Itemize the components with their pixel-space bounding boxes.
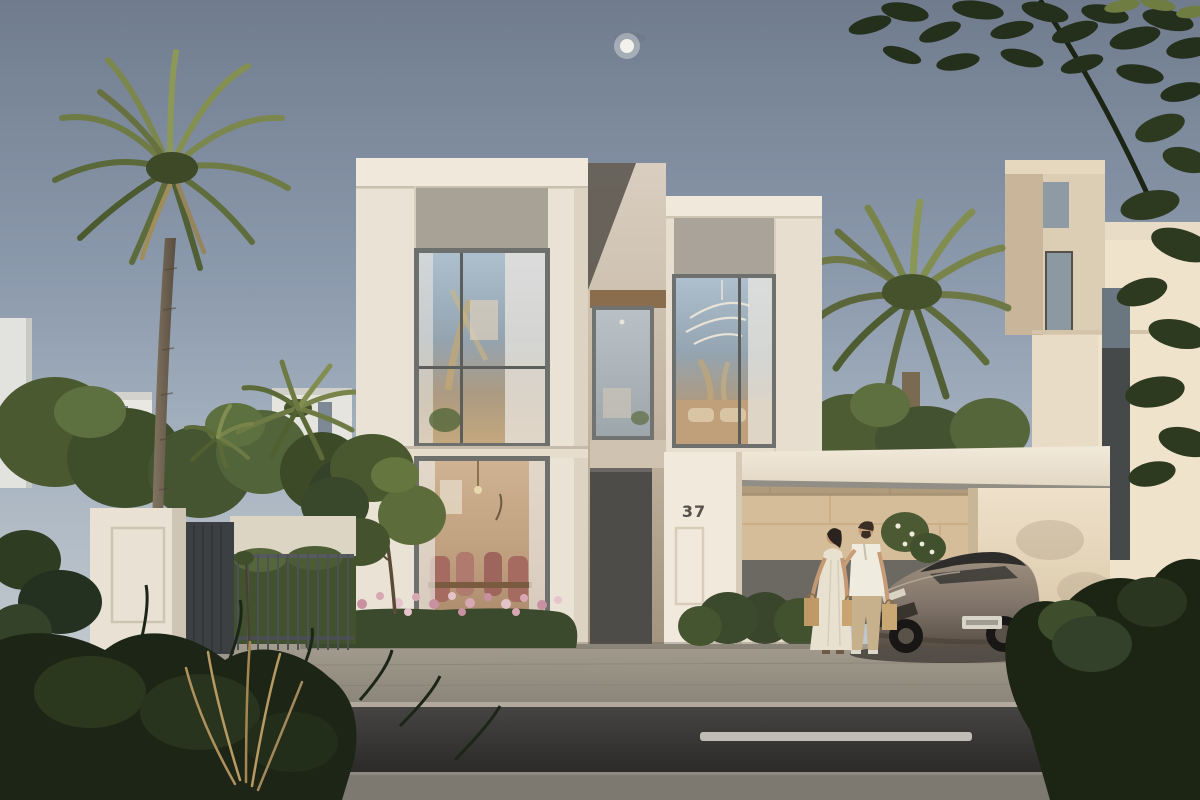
carport-canopy	[742, 446, 1110, 492]
interior-plant	[429, 408, 461, 432]
villa-render-image: 37	[0, 0, 1200, 800]
house-number: 37	[682, 502, 706, 521]
neighbour-villa-window	[1043, 182, 1069, 228]
leaf-shadow	[1016, 520, 1084, 560]
shoe	[851, 650, 861, 654]
villa-parapet	[666, 196, 822, 216]
window-upper-right	[672, 274, 776, 448]
scene-canvas: 37	[0, 0, 1200, 800]
facade-panel	[674, 218, 774, 276]
interior-plant	[631, 411, 649, 425]
window-upper-left	[414, 248, 550, 448]
entry-door	[590, 468, 652, 652]
interior-art	[470, 300, 498, 340]
interior-wall	[603, 388, 631, 418]
entry-recess	[588, 163, 666, 652]
pillow	[720, 408, 746, 422]
villa-parapet	[356, 158, 588, 186]
dining-table	[428, 582, 532, 588]
shoe	[868, 650, 878, 654]
curtain	[748, 278, 772, 444]
pillow	[688, 408, 714, 422]
ceiling-light	[620, 320, 625, 325]
moon	[620, 39, 634, 53]
curtain	[505, 253, 545, 443]
neighbour-villa-window	[1046, 252, 1072, 332]
shopping-bag	[804, 598, 819, 626]
shopping-bag	[882, 604, 897, 630]
wood-band	[590, 290, 666, 308]
facade-panel	[416, 188, 548, 250]
lane-marking	[700, 732, 972, 741]
pendant-light	[474, 486, 482, 494]
stair-window	[592, 306, 654, 440]
